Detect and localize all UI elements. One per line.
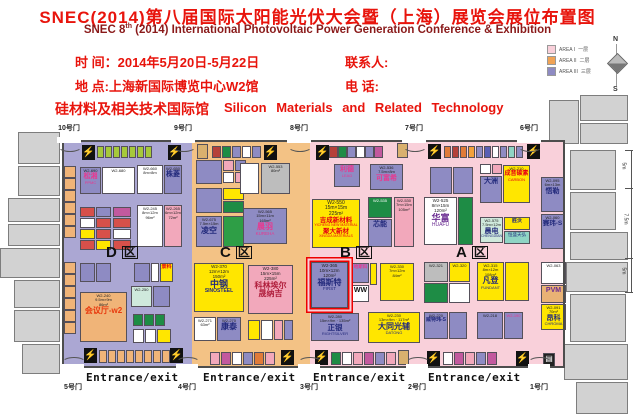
- booth-cell: [144, 314, 154, 326]
- subtitle-part: (2014) International Photovoltaic Power …: [132, 24, 551, 36]
- booth-label: 可富希: [376, 175, 397, 183]
- booth-cell: [162, 350, 170, 363]
- booth-大洲: 大洲: [480, 176, 502, 203]
- booth-W2-190: W2-190: [504, 312, 523, 339]
- booth-cell: [126, 350, 134, 363]
- booth-W2-690: W2-690松湘PPMC: [80, 167, 101, 194]
- hall-name-cn: 硅材料及相关技术国际馆: [55, 99, 209, 119]
- booth-cell: [64, 286, 76, 298]
- booth-cell: [424, 283, 448, 303]
- booth-cell: [232, 146, 241, 158]
- booth-cell: [331, 352, 341, 365]
- gate-label: 8号门: [283, 123, 315, 133]
- gate-label: 1号门: [523, 382, 555, 392]
- booth-cell: [243, 352, 253, 365]
- building-block: [22, 344, 60, 374]
- booth-cell: [338, 146, 347, 158]
- booth-cell: [342, 352, 352, 365]
- booth-cell: [96, 218, 111, 228]
- booth-label: FUNDANT: [481, 286, 500, 290]
- booth-label: CHENGDIAN: [481, 235, 502, 239]
- booth-W2-315: W2-3158m×12m108m²凡登FUNDANT: [477, 262, 504, 301]
- booth-W2-240: W2-2409.5m×9m86m²会议厅-w2: [80, 292, 127, 342]
- booth-cell: [135, 350, 143, 363]
- booth-cell: [96, 263, 111, 282]
- booth-cell: [64, 310, 76, 322]
- booth-W2-321: W2-321: [424, 262, 448, 282]
- zone-suffix: 区: [236, 246, 252, 259]
- booth-label: SINOSTEEL: [205, 289, 233, 294]
- power-icon: ⚡: [82, 145, 95, 160]
- booth-cell: [454, 352, 464, 365]
- power-icon: ⚡: [316, 145, 329, 160]
- booth-cell: [80, 263, 95, 282]
- booth-cell: [375, 352, 385, 365]
- booth-cell: [476, 352, 486, 365]
- building-block: [0, 248, 60, 278]
- booth-cell: [97, 146, 104, 158]
- booth-cell: [386, 352, 396, 365]
- booth-W2-680: W2-680: [102, 167, 135, 194]
- booth-label: 康泰: [221, 323, 237, 332]
- booth-label: CARBON: [508, 178, 525, 182]
- booth-cell: [254, 352, 264, 365]
- booth-cell: [365, 146, 374, 158]
- building-block: [8, 224, 60, 246]
- booth-W2-091: W2-09170m²昂科CHROMA: [541, 304, 566, 330]
- booth-label: W2-680: [111, 169, 125, 173]
- booth-W2-063: W2-063: [541, 262, 566, 284]
- booth-cell: [151, 263, 159, 282]
- phone-label: 电 话:: [345, 76, 379, 95]
- booth-cell: [64, 322, 76, 334]
- booth-cell: [64, 214, 76, 226]
- booth-胜沃: 胜沃: [504, 217, 530, 230]
- booth-label: W2-320: [452, 264, 466, 268]
- booth-cell: [347, 146, 356, 158]
- booth-label: 72m²: [168, 216, 177, 220]
- door-arc: [176, 357, 200, 368]
- gate-label: 10号门: [53, 123, 85, 133]
- compass-south: S: [613, 86, 618, 93]
- booth-cell: [145, 146, 152, 158]
- legend-color-chip: [547, 56, 556, 65]
- booth-cell: [80, 207, 95, 217]
- building-block: [570, 232, 628, 260]
- building-block: [576, 382, 628, 414]
- booth-cell: [155, 314, 165, 326]
- booth-W2-265: W2-2656m×12m72m²: [164, 205, 182, 247]
- booth-cell: [374, 146, 383, 158]
- building-block: [8, 198, 60, 222]
- booth-W2-530: W2-5307m×15m105m²: [394, 197, 414, 247]
- booth-cell: [222, 146, 231, 158]
- booth-cell: [64, 166, 76, 178]
- door-arc: [406, 357, 430, 368]
- booth-cell: [449, 312, 467, 339]
- dimension-tick: [625, 150, 633, 151]
- booth-cell: [508, 146, 515, 158]
- booth-cell: [458, 197, 473, 245]
- compass-diamond: [607, 53, 628, 74]
- door-arc: [403, 141, 427, 152]
- booth-label: 80m²: [271, 169, 280, 173]
- dimension-label: 7.5m: [623, 213, 629, 224]
- building-block: [570, 150, 616, 190]
- booth-cell: [113, 218, 131, 228]
- booth-cell: [134, 263, 150, 282]
- booth-cell: [80, 240, 95, 250]
- booth-cell: [145, 329, 156, 343]
- booth-cell: [274, 320, 283, 340]
- zone-label-C: C区: [220, 244, 252, 261]
- booth-W2-280: W2-28015m×9m · 135m²正银RIGHTSILVER: [311, 313, 359, 341]
- booth-W2-550: W2-55015m×15m225m²吉成新材料YICHENG NEW MATER…: [312, 199, 360, 248]
- dimension-label: 5m: [620, 268, 626, 275]
- booth-W2-575: W2-5757.5m×12m晨电CHENGDIAN: [480, 217, 503, 243]
- booth-cell: [242, 146, 251, 158]
- legend-label: AREA III: [559, 69, 578, 75]
- booth-label: 大洲: [484, 178, 498, 186]
- booth-cell: [80, 218, 95, 228]
- booth-cell: [476, 146, 483, 158]
- booth-cell: [364, 352, 374, 365]
- booth-cell: [223, 201, 244, 213]
- zone-letter: B: [340, 244, 351, 261]
- booth-label: 赛玮-S: [543, 220, 563, 227]
- booth-label: 哈斯科: [354, 265, 368, 270]
- legend-floor: 二层: [580, 57, 590, 64]
- booth-label: 84m²: [392, 274, 401, 278]
- door-arc: [528, 357, 552, 368]
- booth-芯能: 芯能: [368, 219, 392, 247]
- compass-north: N: [613, 36, 618, 43]
- booth-W2-218: W2-218: [477, 312, 503, 339]
- booth-cell: [210, 352, 220, 365]
- entrance-exit-label: Entrance/exit: [313, 371, 406, 384]
- booth-cell: [223, 172, 234, 183]
- booth-label: PVM: [546, 287, 561, 295]
- booth-W2-380: W2-38015m×15m225m²科林埃尔晟纳吉: [248, 265, 293, 314]
- booth-W2-230: W2-23013m×9m · 117m²大同光辅DATONG: [368, 312, 420, 343]
- booth-label: XINGDA MATERIALS: [319, 235, 353, 239]
- booth-cell: [453, 167, 473, 194]
- booth-cell: [133, 329, 144, 343]
- subtitle-sup: th: [125, 23, 132, 30]
- booth-W2-553: W2-55380m²: [261, 163, 290, 194]
- booth-label: W2-063: [546, 264, 560, 268]
- booth-W2-250: W2-250: [131, 286, 152, 307]
- booth-cell: [117, 350, 125, 363]
- booth-label: CHROMA: [545, 322, 563, 326]
- booth-cell: [487, 352, 497, 365]
- booth-cell: [353, 352, 363, 365]
- zone-suffix: 区: [356, 246, 372, 259]
- building-block: [570, 294, 626, 342]
- booth-cell: [468, 146, 475, 158]
- booth-cell: [108, 350, 116, 363]
- booth-label: 8m×8m: [143, 171, 156, 175]
- booth-cell: [284, 320, 293, 340]
- booth-W2-660: W2-6608m×8m: [137, 165, 163, 194]
- building-block: [14, 280, 60, 308]
- booth-cell: [356, 146, 365, 158]
- dimension-tick: [625, 188, 633, 189]
- booth-cell: [505, 262, 529, 301]
- zone-label-A: A区: [456, 244, 488, 261]
- door-arc: [172, 141, 196, 152]
- booth-W2-535: W2-535: [368, 197, 392, 218]
- booth-W2-270: W2-270康泰: [217, 317, 241, 341]
- zone-label-B: B区: [340, 244, 372, 261]
- gate-label: 9号门: [167, 123, 199, 133]
- booth-label: WW: [354, 287, 367, 295]
- zone-suffix: 区: [472, 246, 488, 259]
- booth-cell: [444, 146, 451, 158]
- booth-label: W2-190: [506, 314, 520, 318]
- booth-label: 株菱: [166, 171, 180, 179]
- building-block: [549, 100, 579, 144]
- building-block: [580, 123, 628, 144]
- booth-cell: [492, 164, 502, 174]
- power-icon: ⚡: [84, 348, 97, 363]
- booth-cell: [64, 226, 76, 238]
- booth-cell: [223, 160, 234, 171]
- booth-cell: [465, 352, 475, 365]
- legend-floor: 三层: [581, 68, 591, 75]
- booth-cell: [105, 146, 112, 158]
- building-block: [566, 262, 628, 292]
- booth-label: HUAFU: [432, 223, 449, 228]
- booth-label: 景科: [161, 265, 171, 270]
- booth-PVM: PVM: [541, 285, 566, 303]
- booth-label: 96m²: [145, 216, 154, 220]
- booth-label: KUREHA: [256, 232, 275, 237]
- subtitle-part: SNEC 8: [84, 24, 126, 36]
- booth-cell: [452, 146, 459, 158]
- booth-label: 105m²: [398, 208, 409, 212]
- booth-cell: [64, 262, 76, 274]
- booth-label: FIRST: [323, 287, 336, 292]
- door-arc: [298, 357, 322, 368]
- booth-W2-565: W2-56515m×11m165m²晨羽KUREHA: [243, 208, 287, 244]
- booth-cell: [449, 283, 470, 303]
- booth-哈斯科: 哈斯科: [352, 263, 369, 283]
- building-block: [564, 344, 628, 380]
- booth-cell: [129, 146, 136, 158]
- booth-cell: [500, 146, 507, 158]
- booth-cell: [99, 350, 107, 363]
- legend-floor: 一层: [578, 46, 588, 53]
- booth-label: W2-218: [483, 314, 497, 318]
- booth-W2-370: W2-37012m×12m150m²中钢SINOSTEEL: [194, 263, 244, 312]
- booth-cell: [64, 298, 76, 310]
- date-label: 时 间：2014年5月20日-5月22日: [75, 52, 259, 71]
- booth-label: 晟纳吉: [259, 290, 283, 299]
- booth-W2-650: W2-650株菱: [164, 165, 182, 194]
- area-legend: AREA I一层 AREA II二层 AREA III三层: [547, 44, 594, 77]
- zone-letter: D: [106, 244, 117, 261]
- entrance-exit-label: Entrance/exit: [203, 371, 296, 384]
- building-block: [570, 192, 616, 230]
- dimension-label: 5m: [620, 163, 626, 170]
- door-arc: [288, 141, 312, 152]
- booth-label: 威特玮-S: [426, 318, 446, 323]
- booth-label: W2-250: [134, 288, 148, 292]
- booth-label: 芯能: [373, 221, 387, 229]
- booth-cell: [460, 146, 467, 158]
- booth-W2-320: W2-320: [449, 262, 470, 282]
- booth-cell: [157, 329, 171, 343]
- booth-cell: [96, 229, 111, 239]
- booth-label: LEAD: [342, 174, 352, 178]
- booth-cell: [252, 146, 261, 158]
- booth-W2-210: W2-210成音碳素CARBON: [503, 165, 530, 203]
- booth-W2-675: W2-6757.5m×15m凌空: [196, 216, 222, 247]
- booth-cell: [153, 286, 170, 307]
- floorplan-poster: SNEC(2014)第八届国际太阳能光伏大会暨（上海）展览会展位布置图 SNEC…: [0, 0, 635, 416]
- booth-cell: [430, 167, 452, 194]
- booth-cell: [64, 274, 76, 286]
- booth-cell: [232, 352, 242, 365]
- door-arc: [518, 141, 542, 152]
- booth-cell: [221, 352, 231, 365]
- booth-cell: [265, 352, 275, 365]
- booth-cell: [137, 146, 144, 158]
- booth-cell: [144, 350, 152, 363]
- booth-利德: 利德LEAD: [334, 164, 360, 187]
- booth-WW: WW: [352, 285, 369, 302]
- booth-W2-245: W2-2458m×12m96m²: [137, 205, 163, 247]
- booth-label: 胜沃: [512, 219, 522, 224]
- legend-label: AREA II: [559, 58, 577, 64]
- entrance-exit-label: Entrance/exit: [86, 371, 179, 384]
- building-block: [18, 166, 60, 196]
- booth-W2-365: W2-36510m×12m120m²福斯特FIRST: [311, 262, 348, 308]
- booth-cell: [248, 320, 260, 340]
- compass-icon: N S: [606, 36, 628, 94]
- gate-label: 6号门: [513, 123, 545, 133]
- booth-cell: [370, 263, 377, 285]
- legend-row: AREA II二层: [547, 55, 594, 66]
- booth-W2-095: W2-0956m×13m悟勒: [541, 177, 564, 212]
- booth-W2-536: W2-5367.5m×8m可富希: [370, 164, 403, 190]
- booth-cell: [223, 216, 244, 247]
- zone-suffix: 区: [122, 246, 138, 259]
- booth-cell: [196, 160, 222, 184]
- building-block: [18, 132, 60, 164]
- booth-cell: [133, 314, 143, 326]
- booth-label: PPMC: [85, 181, 97, 185]
- legend-label: AREA I: [559, 47, 575, 53]
- booth-cell: [480, 164, 491, 174]
- zone-label-D: D区: [106, 244, 138, 261]
- booth-cell: [153, 350, 161, 363]
- booth-W2-271: W2-27163m²: [194, 317, 216, 341]
- booth-cell: [64, 190, 76, 202]
- booth-label: 会议厅-w2: [85, 307, 122, 316]
- booth-label: 63m²: [200, 323, 209, 327]
- legend-color-chip: [547, 67, 556, 76]
- power-icon: ⚡: [281, 350, 294, 365]
- door-arc: [58, 141, 82, 152]
- booth-cell: [113, 229, 131, 239]
- booth-cell: [443, 352, 453, 365]
- booth-景科: 景科: [160, 263, 173, 282]
- booth-cell: [80, 229, 95, 239]
- booth-cell: [197, 144, 208, 159]
- booth-label: W2-535: [373, 199, 387, 203]
- booth-W2-330: W2-3307m×12m84m²: [380, 263, 414, 301]
- booth-cell: [113, 207, 131, 217]
- booth-cell: [212, 146, 221, 158]
- booth-label: 恒盛天弘: [508, 233, 526, 238]
- booth-cell: [121, 146, 128, 158]
- booth-cell: [484, 146, 491, 158]
- booth-cell: [492, 146, 499, 158]
- legend-row: AREA III三层: [547, 66, 594, 77]
- dimension-tick: [625, 258, 633, 259]
- power-icon: ⚡: [264, 145, 277, 160]
- booth-label: RIGHTSILVER: [322, 332, 348, 336]
- zone-letter: A: [456, 244, 467, 261]
- booth-恒盛天弘: 恒盛天弘: [504, 231, 530, 244]
- hall-name-en: Silicon Materials and Related Technology: [224, 100, 503, 115]
- page-subtitle: SNEC 8th (2014) International Photovolta…: [0, 23, 635, 36]
- booth-label: 悟勒: [546, 188, 560, 196]
- booth-cell: [64, 202, 76, 214]
- entrance-exit-label: Entrance/exit: [428, 371, 521, 384]
- gate-label: 5号门: [57, 382, 89, 392]
- booth-label: DATONG: [386, 331, 403, 335]
- power-icon: ⚡: [428, 144, 441, 159]
- building-block: [580, 95, 628, 121]
- dimension-line: [631, 150, 632, 292]
- gate-label: 7号门: [398, 123, 430, 133]
- dimension-tick: [625, 292, 633, 293]
- booth-cell: [64, 178, 76, 190]
- booth-cell: [96, 207, 111, 217]
- booth-label: W2-321: [429, 264, 443, 268]
- legend-color-chip: [547, 45, 556, 54]
- building-block: [14, 310, 60, 342]
- booth-cell: [261, 320, 273, 340]
- booth-cell: [113, 146, 120, 158]
- zone-letter: C: [220, 244, 231, 261]
- booth-cell: [196, 188, 222, 213]
- legend-row: AREA I一层: [547, 44, 594, 55]
- venue-label: 地 点:上海新国际博览中心W2馆: [75, 76, 258, 95]
- booth-W2-220: W2-220威特玮-S: [424, 312, 448, 339]
- contact-label: 联系人:: [345, 52, 388, 71]
- door-arc: [62, 357, 86, 368]
- booth-W2-525: W2-5258m×15m120m²华富HUAFU: [424, 197, 457, 245]
- booth-W2-060: W2-060赛玮-S: [541, 214, 564, 249]
- booth-label: 凌空: [201, 227, 217, 236]
- booth-cell: [329, 146, 338, 158]
- booth-cell: [240, 163, 259, 194]
